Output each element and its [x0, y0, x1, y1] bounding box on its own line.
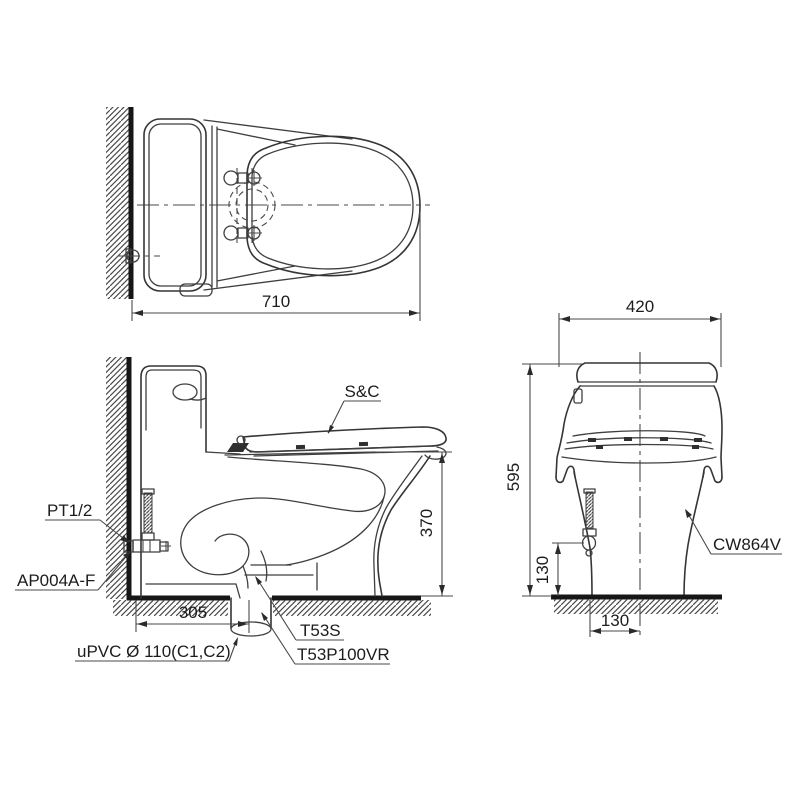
dimension-370-label: 370: [417, 509, 436, 537]
seat-bumper-1: [296, 445, 305, 449]
top-view: 710: [106, 107, 430, 321]
dimension-420-label: 420: [626, 297, 654, 316]
seat-hinge-cap-left: [588, 438, 596, 442]
dimension-inlet-height: 130: [533, 543, 584, 596]
body-ears-front: [556, 466, 722, 482]
wall-hatching: [106, 107, 129, 299]
outlet-flange-lines: [245, 563, 317, 590]
toilet-installation-drawing: 710: [0, 0, 800, 800]
seat-cover-inner-plan: [252, 143, 413, 269]
seat-bumper-front-1: [624, 437, 632, 441]
seat-mark-left: [596, 445, 603, 449]
pedestal-sides-front: [574, 472, 704, 597]
dimension-130v-label: 130: [533, 556, 552, 584]
side-view: 370 305 S&C PT1/2 AP004A-F uPVC Ø 110(C1…: [15, 357, 453, 664]
floor-hatching-front: [554, 599, 718, 614]
tank-profile: [141, 366, 206, 598]
floor-hatching-right: [273, 600, 431, 616]
trapway-section-curve: [181, 457, 385, 575]
seat-bumper-front-2: [660, 437, 668, 441]
hinge-bolt-top: [224, 170, 262, 186]
flush-button: [173, 384, 197, 400]
drawing-page: 710: [0, 0, 800, 800]
seat-hinge-cap-right: [694, 438, 702, 442]
flange-t53p-label: T53P100VR: [297, 645, 390, 664]
dimension-130h-label: 130: [601, 611, 629, 630]
drain-pipe-label: uPVC Ø 110(C1,C2): [77, 642, 231, 661]
stop-valve-label: AP004A-F: [17, 571, 95, 590]
seat-cover-outline-plan: [247, 136, 420, 275]
dimension-overall-depth: 710: [132, 212, 420, 321]
hinge-bolt-bottom: [224, 225, 262, 241]
floor-hatching-left: [113, 600, 228, 616]
seat-cover-profile: [243, 427, 446, 452]
callout-seat-cover: S&C: [328, 382, 381, 434]
wall-hatching-side: [106, 357, 127, 599]
seat-hinge: [227, 443, 249, 452]
dimension-595-label: 595: [504, 463, 523, 491]
callout-drain-pipe: uPVC Ø 110(C1,C2): [75, 637, 238, 661]
tank-lid-lip: [578, 382, 716, 386]
model-label: CW864V: [713, 535, 782, 554]
seat-mark-right: [692, 445, 699, 449]
tank-inner-profile: [146, 370, 240, 598]
front-view: 420 595 130 130 CW864V: [504, 297, 782, 637]
flange-t53s-label: T53S: [300, 621, 341, 640]
seat-bumper-2: [359, 442, 368, 446]
tank-lid-front: [577, 363, 717, 382]
callout-model: CW864V: [685, 509, 782, 554]
dimension-305-label: 305: [179, 603, 207, 622]
water-inlet-label: PT1/2: [47, 501, 92, 520]
seat-cover-label: S&C: [345, 382, 380, 401]
dimension-710-label: 710: [262, 292, 290, 311]
